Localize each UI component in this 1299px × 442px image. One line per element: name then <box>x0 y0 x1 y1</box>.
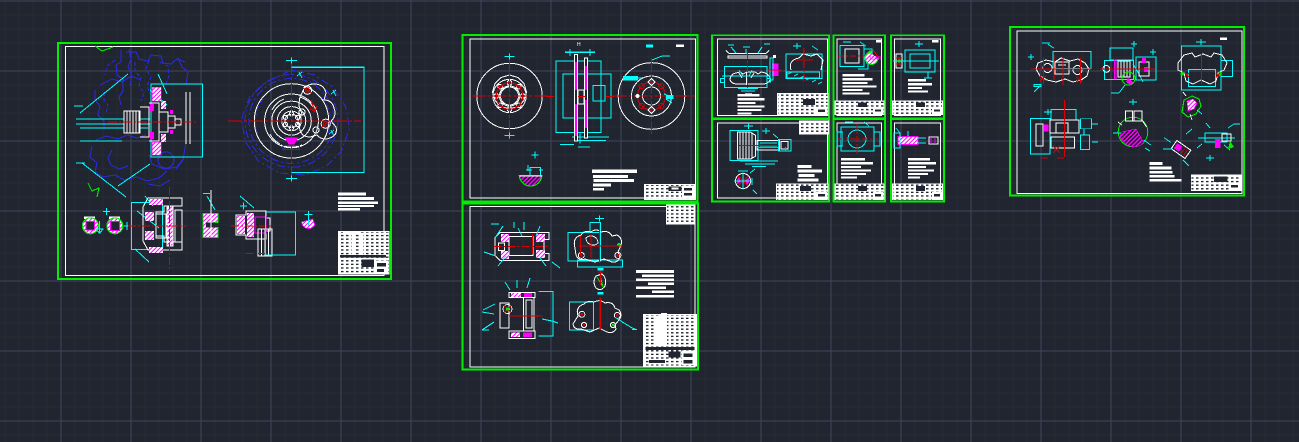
svg-text:10AR: 10AR <box>869 56 882 62</box>
svg-text:H: H <box>577 42 581 48</box>
